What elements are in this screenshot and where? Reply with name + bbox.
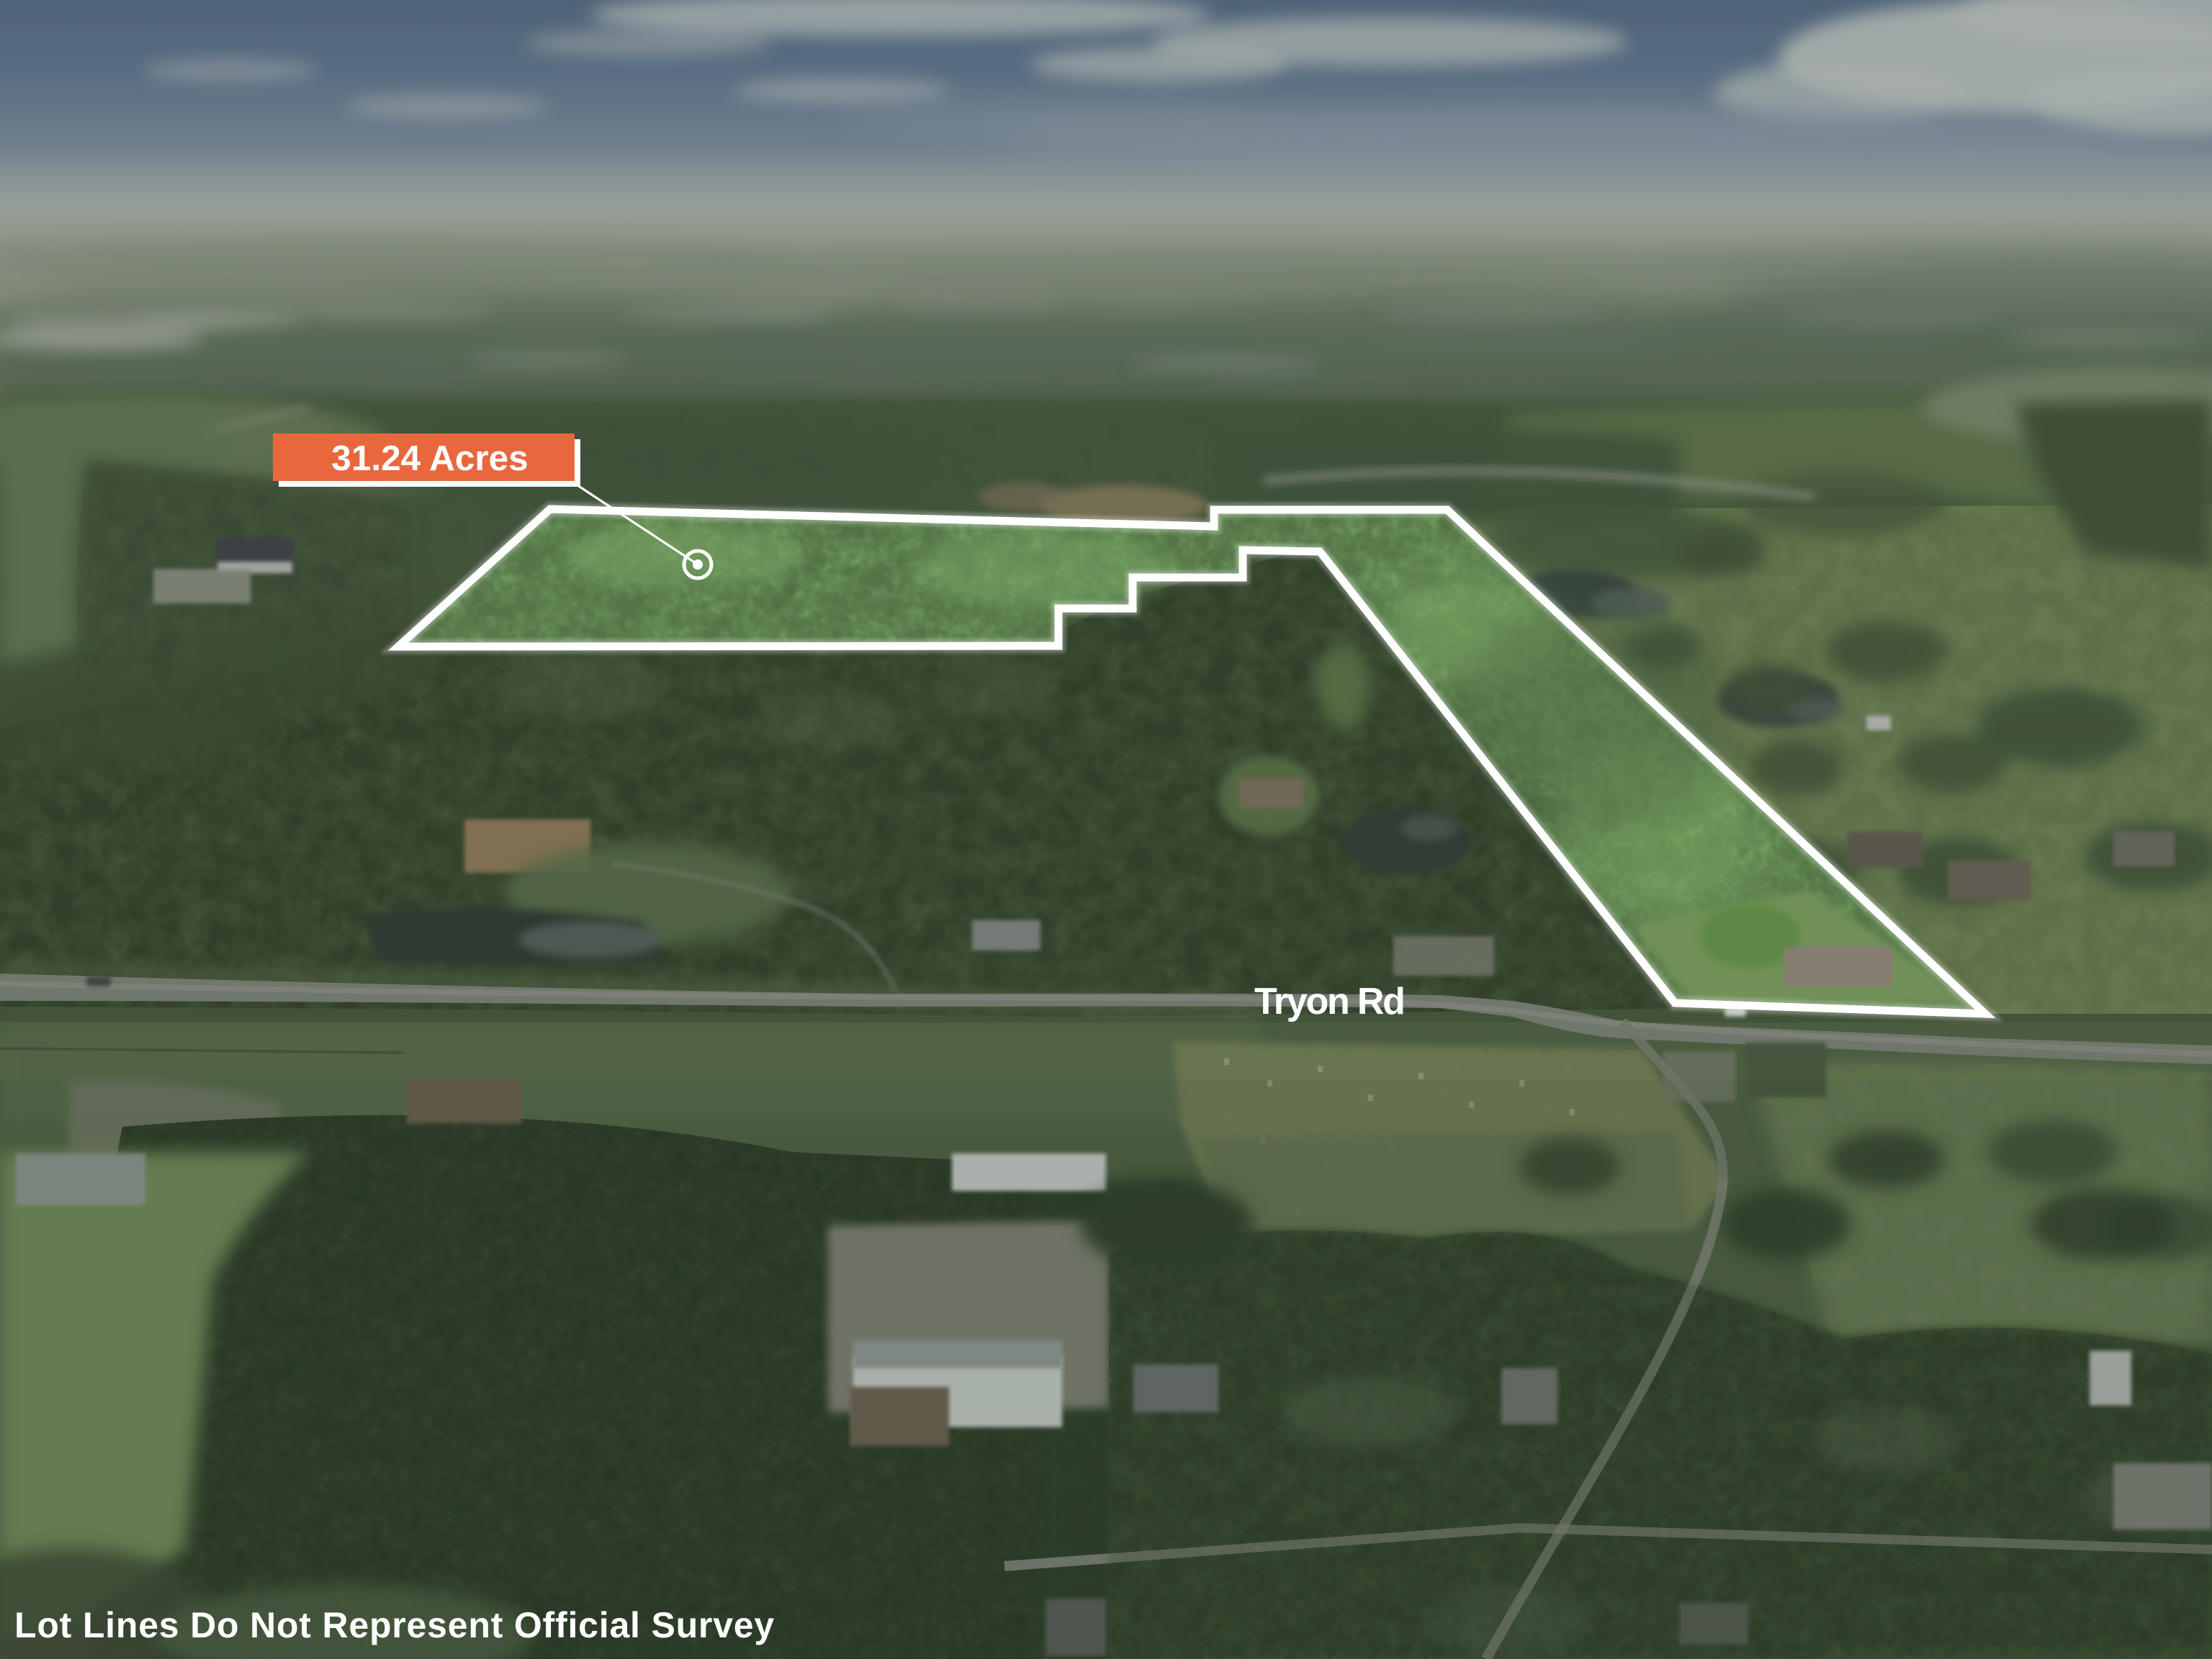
svg-text:Tryon Rd: Tryon Rd (1254, 981, 1404, 1022)
svg-text:Lot Lines Do Not Represent Off: Lot Lines Do Not Represent Official Surv… (14, 1605, 775, 1645)
svg-text:31.24 Acres: 31.24 Acres (331, 439, 528, 478)
